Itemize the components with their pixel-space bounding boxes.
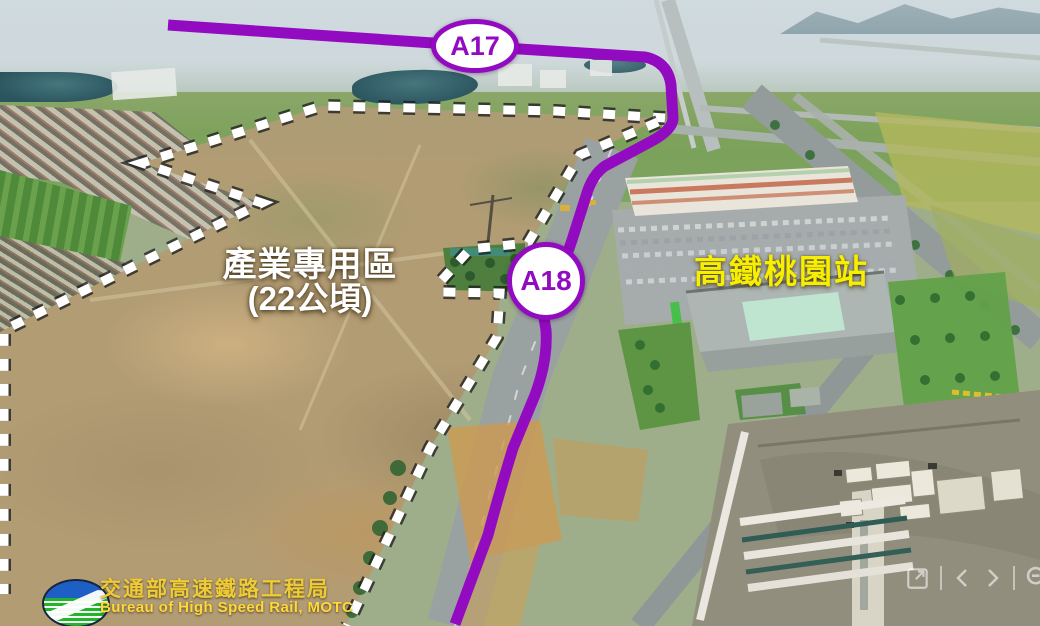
station-badge-a18-label: A18 [520,265,571,297]
org-name-zh: 交通部高速鐵路工程局 [100,578,353,600]
image-viewer-controls [905,564,1040,592]
zoom-out-icon[interactable] [1024,564,1040,592]
zone-boundary-dashed-line [4,106,665,626]
footer-credit: 交通部高速鐵路工程局 Bureau of High Speed Rail, MO… [100,578,353,616]
station-badge-a17: A17 [431,19,519,73]
zone-area: (22公頃) [188,282,432,315]
org-name-en: Bureau of High Speed Rail, MOTC [100,600,353,616]
station-badge-a18: A18 [507,242,585,320]
hsr-station-label: 高鐵桃園站 [694,245,869,293]
viewer-divider [1013,566,1015,590]
chevron-left-icon[interactable] [951,565,973,591]
station-badge-a17-label: A17 [450,31,500,62]
viewer-divider [940,566,942,590]
chevron-right-icon[interactable] [982,565,1004,591]
expand-icon[interactable] [905,565,931,591]
map-annotation-overlay [0,0,1040,626]
industrial-zone-label: 產業專用區 (22公頃) [188,248,432,315]
zone-title: 產業專用區 [188,248,432,282]
metro-route-line [168,25,673,624]
aerial-photo-figure: A17 A18 產業專用區 (22公頃) 高鐵桃園站 交通部高速鐵路工程局 Bu… [0,0,1040,626]
